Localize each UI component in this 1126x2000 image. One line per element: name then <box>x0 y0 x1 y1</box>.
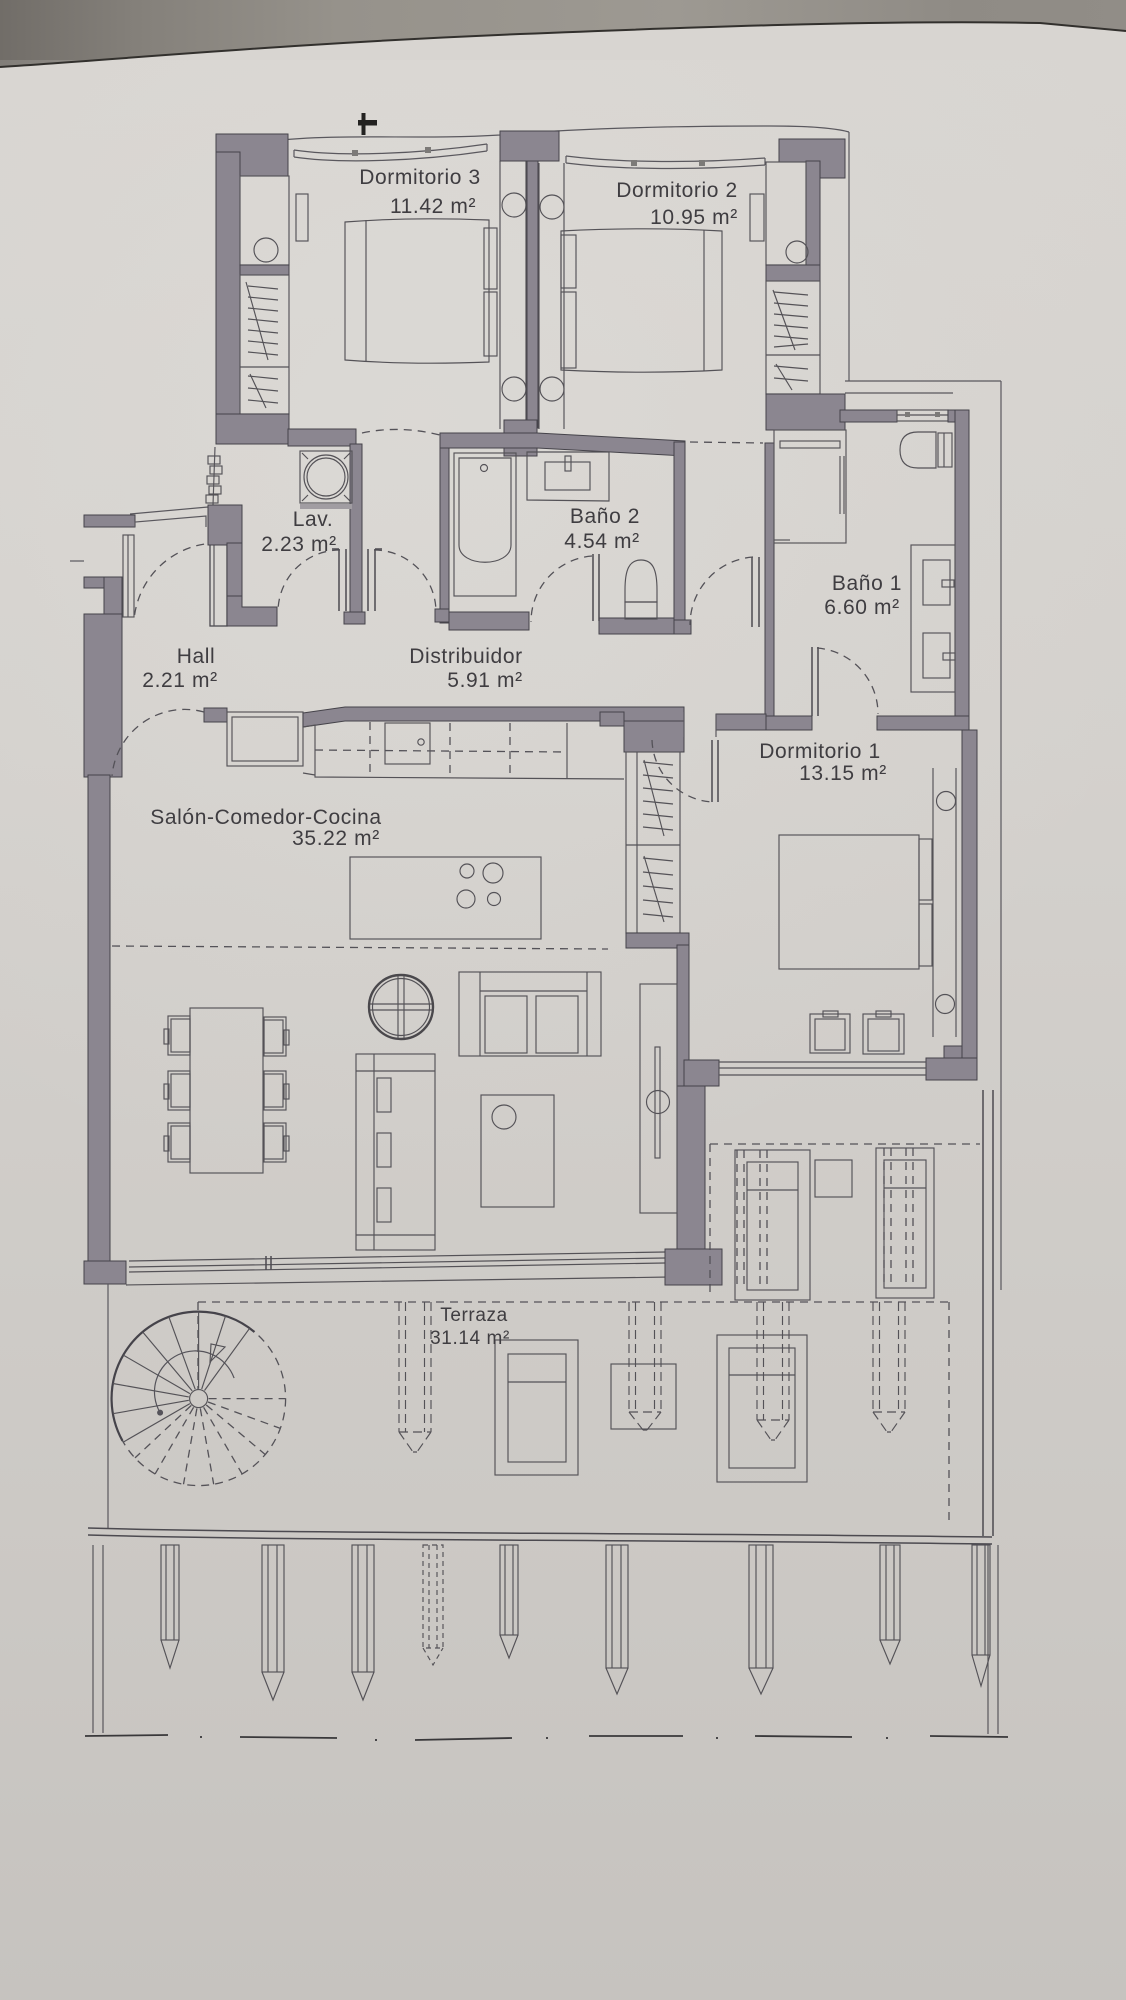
svg-text:Hall: Hall <box>177 645 216 668</box>
svg-text:4.54 m²: 4.54 m² <box>564 530 639 553</box>
svg-text:Baño 1: Baño 1 <box>832 572 902 595</box>
svg-text:Distribuidor: Distribuidor <box>409 645 522 668</box>
svg-text:31.14 m²: 31.14 m² <box>430 1328 510 1349</box>
svg-text:10.95 m²: 10.95 m² <box>650 206 738 229</box>
svg-text:Baño 2: Baño 2 <box>570 505 640 528</box>
svg-text:Dormitorio 2: Dormitorio 2 <box>616 179 738 202</box>
svg-text:Salón-Comedor-Cocina: Salón-Comedor-Cocina <box>150 806 381 829</box>
svg-text:2.23 m²: 2.23 m² <box>261 533 336 556</box>
svg-text:13.15 m²: 13.15 m² <box>799 762 887 785</box>
svg-text:11.42 m²: 11.42 m² <box>390 195 476 218</box>
svg-text:Dormitorio 3: Dormitorio 3 <box>359 166 481 189</box>
svg-text:2.21 m²: 2.21 m² <box>142 669 217 692</box>
svg-text:Dormitorio 1: Dormitorio 1 <box>759 740 881 763</box>
svg-text:Terraza: Terraza <box>440 1305 508 1326</box>
svg-text:35.22 m²: 35.22 m² <box>292 827 380 850</box>
svg-text:5.91 m²: 5.91 m² <box>447 669 522 692</box>
svg-text:6.60 m²: 6.60 m² <box>824 596 899 619</box>
svg-text:Lav.: Lav. <box>293 508 334 531</box>
